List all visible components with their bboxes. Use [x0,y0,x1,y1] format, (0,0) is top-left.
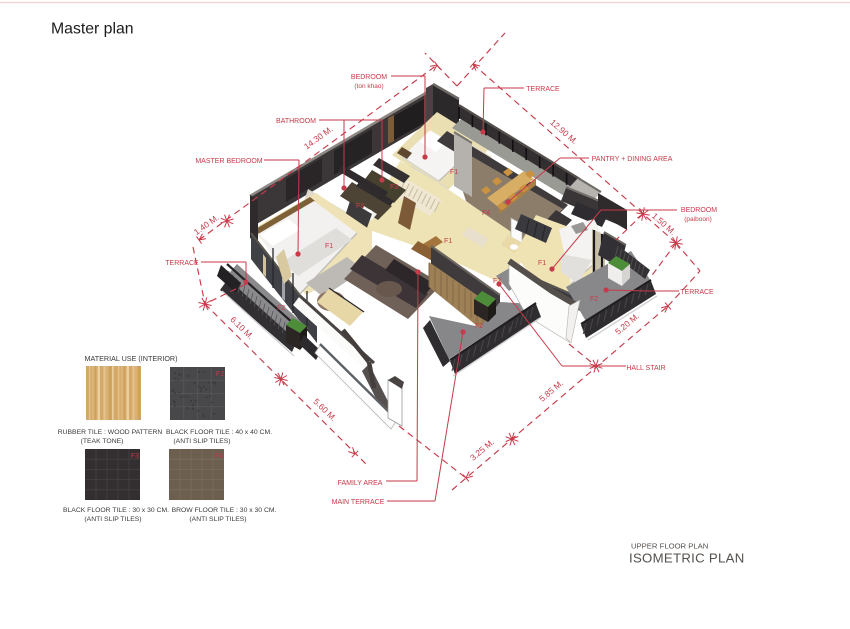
svg-text:HALL STAIR: HALL STAIR [626,365,665,372]
svg-text:F3: F3 [356,203,364,210]
svg-text:F2: F2 [493,278,501,285]
svg-text:UPPER FLOOR PLAN: UPPER FLOOR PLAN [631,542,708,551]
svg-text:MASTER BEDROOM: MASTER BEDROOM [195,158,262,165]
svg-text:F1: F1 [538,260,546,267]
svg-text:F2: F2 [475,323,483,330]
svg-text:(ANTI SLIP TILES): (ANTI SLIP TILES) [84,516,141,523]
svg-text:BLACK FLOOR TILE : 30 x 30 C: BLACK FLOOR TILE : 30 x 30 CM. [63,507,169,514]
svg-text:F1: F1 [450,169,458,176]
svg-text:F2: F2 [277,305,285,312]
svg-text:F4: F4 [215,453,223,460]
svg-text:F1: F1 [444,238,452,245]
svg-text:BATHROOM: BATHROOM [276,118,316,125]
svg-text:TERRACE: TERRACE [526,86,560,93]
svg-text:BROW FLOOR TILE : 30 x 30 CM: BROW FLOOR TILE : 30 x 30 CM. [172,507,277,514]
svg-text:(ANTI SLIP TILES): (ANTI SLIP TILES) [173,438,230,445]
svg-text:ISOMETRIC PLAN: ISOMETRIC PLAN [629,551,745,566]
svg-text:BEDROOM: BEDROOM [351,74,387,81]
svg-text:F3: F3 [131,453,139,460]
svg-text:F4: F4 [482,210,490,217]
svg-text:MATERIAL USE (INTERIOR): MATERIAL USE (INTERIOR) [84,354,177,363]
svg-text:PANTRY + DINING AREA: PANTRY + DINING AREA [592,156,673,163]
svg-text:(ANTI SLIP TILES): (ANTI SLIP TILES) [189,516,246,523]
svg-text:FAMILY AREA: FAMILY AREA [338,480,383,487]
svg-text:(ton khao): (ton khao) [354,83,383,90]
svg-text:BLACK FLOOR TILE : 40 x 40 C: BLACK FLOOR TILE : 40 x 40 CM. [166,429,272,436]
svg-text:BEDROOM: BEDROOM [681,207,717,214]
svg-text:TERRACE: TERRACE [165,260,199,267]
svg-text:F2: F2 [216,371,224,378]
svg-text:TERRACE: TERRACE [680,289,714,296]
svg-text:F1: F1 [325,243,333,250]
svg-text:Master plan: Master plan [51,21,134,38]
svg-text:MAIN TERRACE: MAIN TERRACE [332,499,385,506]
svg-text:RUBBER TILE : WOOD PATTERN: RUBBER TILE : WOOD PATTERN [58,429,163,436]
svg-text:F2: F2 [590,296,598,303]
svg-text:(TEAK TONE): (TEAK TONE) [81,438,124,445]
svg-text:F3: F3 [390,184,398,191]
svg-text:(paiboon): (paiboon) [684,216,711,223]
